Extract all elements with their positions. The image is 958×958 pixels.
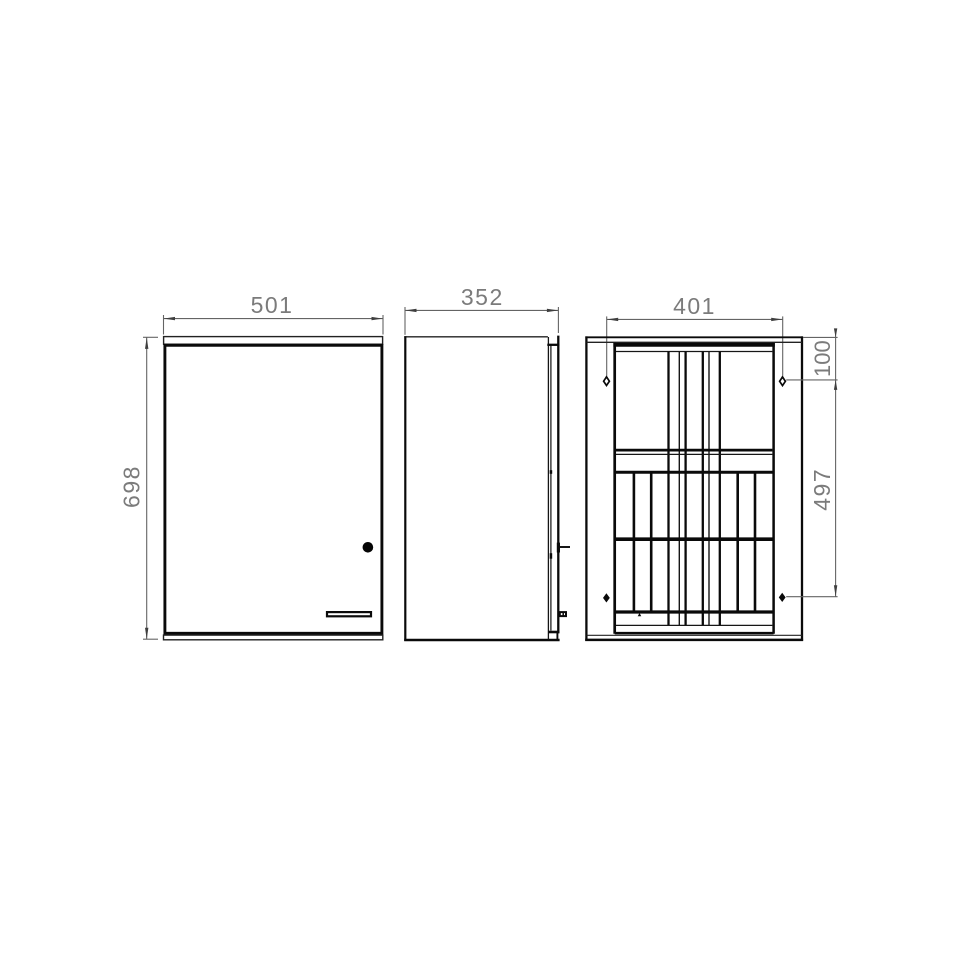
svg-text:501: 501 [251, 292, 294, 318]
svg-text:497: 497 [809, 468, 835, 511]
svg-text:100: 100 [810, 340, 835, 377]
svg-text:352: 352 [461, 284, 504, 310]
svg-text:401: 401 [673, 293, 716, 319]
svg-text:698: 698 [119, 465, 145, 508]
